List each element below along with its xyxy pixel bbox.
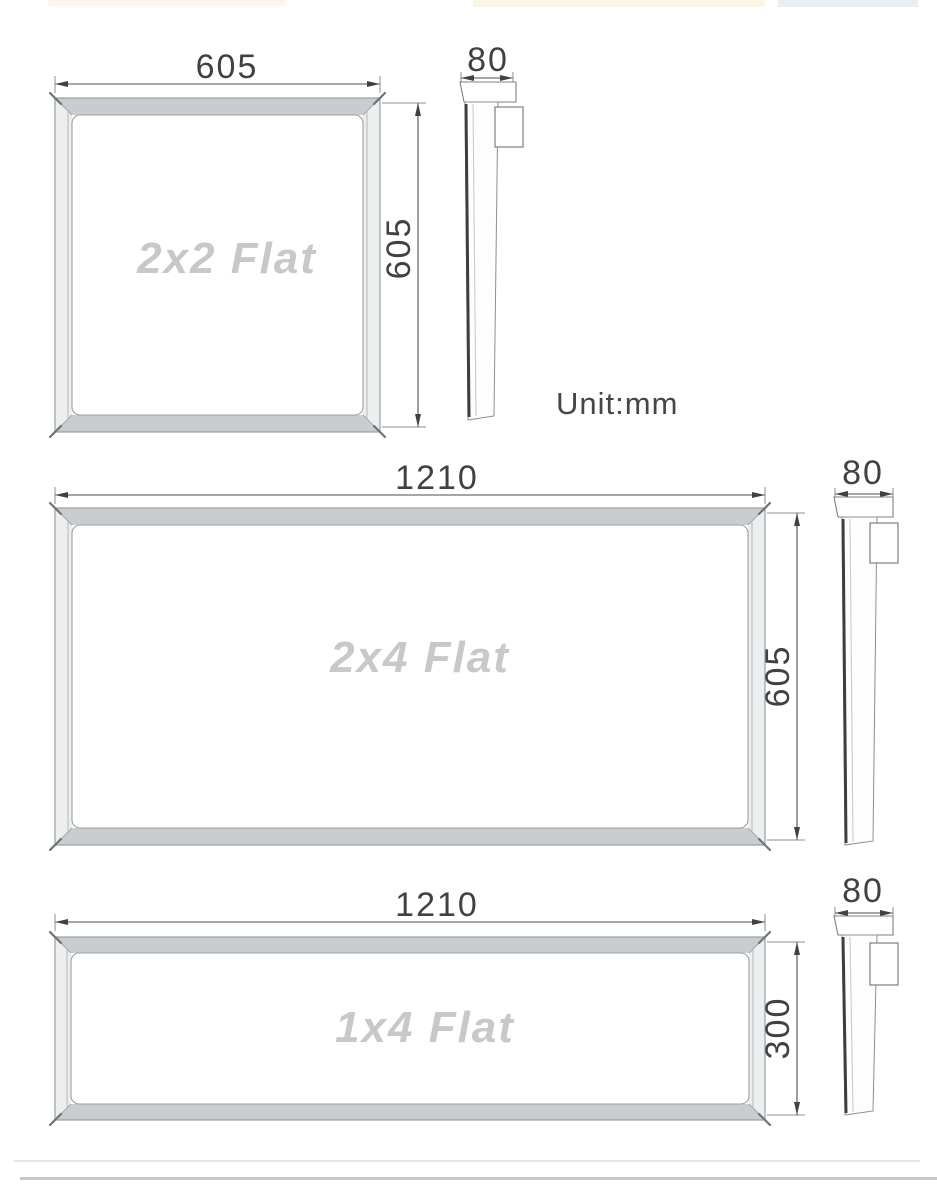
top-color-strip-right [778, 0, 918, 7]
arrowhead-right-icon [367, 81, 380, 87]
arrowhead-down-icon [415, 414, 421, 427]
driver-box [870, 943, 898, 985]
dimension-1x4-height: 300 [759, 942, 805, 1115]
arrowhead-right-icon [880, 491, 893, 497]
panel-1x4-name-label: 1x4 Flat [335, 1003, 515, 1052]
top-color-strip-left [48, 0, 286, 6]
dimension-1x4-height-label: 300 [759, 997, 797, 1060]
arrowhead-down-icon [794, 1102, 800, 1115]
arrowhead-left-icon [55, 492, 68, 498]
arrowhead-left-icon [55, 81, 68, 87]
profile-2x2-drawing [460, 82, 523, 420]
profile-1x4-drawing [834, 916, 898, 1115]
panel-2x2-front-view: 605 2x2 Flat 605 [30, 40, 440, 450]
panel-2x2-name-label: 2x2 Flat [136, 234, 317, 283]
arrowhead-right-icon [880, 910, 893, 916]
dimension-1x4-width: 1210 [55, 886, 765, 931]
panel-dimension-drawing-page: 605 2x2 Flat 605 [0, 0, 937, 1189]
dimension-2x4-width-label: 1210 [395, 459, 479, 497]
profile-2x4-drawing [834, 497, 898, 845]
dimension-2x4-depth: 80 [835, 454, 893, 503]
panel-1x4-side-profile: 80 [823, 868, 923, 1128]
driver-box [495, 107, 523, 147]
arrowhead-up-icon [415, 103, 421, 116]
bottom-divider-light [14, 1160, 920, 1162]
unit-label: Unit:mm [556, 386, 678, 422]
panel-1x4-front-view: 1210 1x4 Flat 300 [30, 878, 820, 1140]
dimension-2x2-height: 605 [380, 103, 426, 427]
dimension-2x4-height-label: 605 [759, 645, 797, 708]
dimension-1x4-depth-label: 80 [842, 872, 884, 910]
dimension-2x2-width-label: 605 [196, 48, 259, 86]
arrowhead-right-icon [752, 919, 765, 925]
bottom-divider [20, 1177, 937, 1180]
driver-box [870, 523, 898, 563]
dimension-2x2-width: 605 [55, 48, 380, 93]
panel-2x4-side-profile: 80 [823, 448, 923, 858]
arrowhead-up-icon [794, 513, 800, 526]
arrowhead-right-icon [752, 492, 765, 498]
dimension-2x2-depth-label: 80 [467, 41, 509, 79]
dimension-1x4-width-label: 1210 [395, 886, 479, 924]
dimension-2x4-depth-label: 80 [842, 454, 884, 492]
dimension-2x4-width: 1210 [55, 459, 765, 504]
dimension-2x2-height-label: 605 [380, 217, 418, 280]
arrowhead-up-icon [794, 942, 800, 955]
dimension-2x2-depth: 80 [461, 41, 513, 87]
panel-2x4-front-view: 1210 2x4 Flat 605 [30, 450, 820, 860]
dimension-1x4-depth: 80 [835, 872, 893, 922]
panel-2x2-side-profile: 80 [450, 40, 545, 440]
dimension-2x4-height: 605 [759, 513, 805, 840]
arrowhead-down-icon [794, 827, 800, 840]
arrowhead-left-icon [835, 910, 848, 916]
panel-2x4-name-label: 2x4 Flat [329, 633, 510, 682]
arrowhead-left-icon [55, 919, 68, 925]
top-color-strip-middle [473, 0, 765, 7]
